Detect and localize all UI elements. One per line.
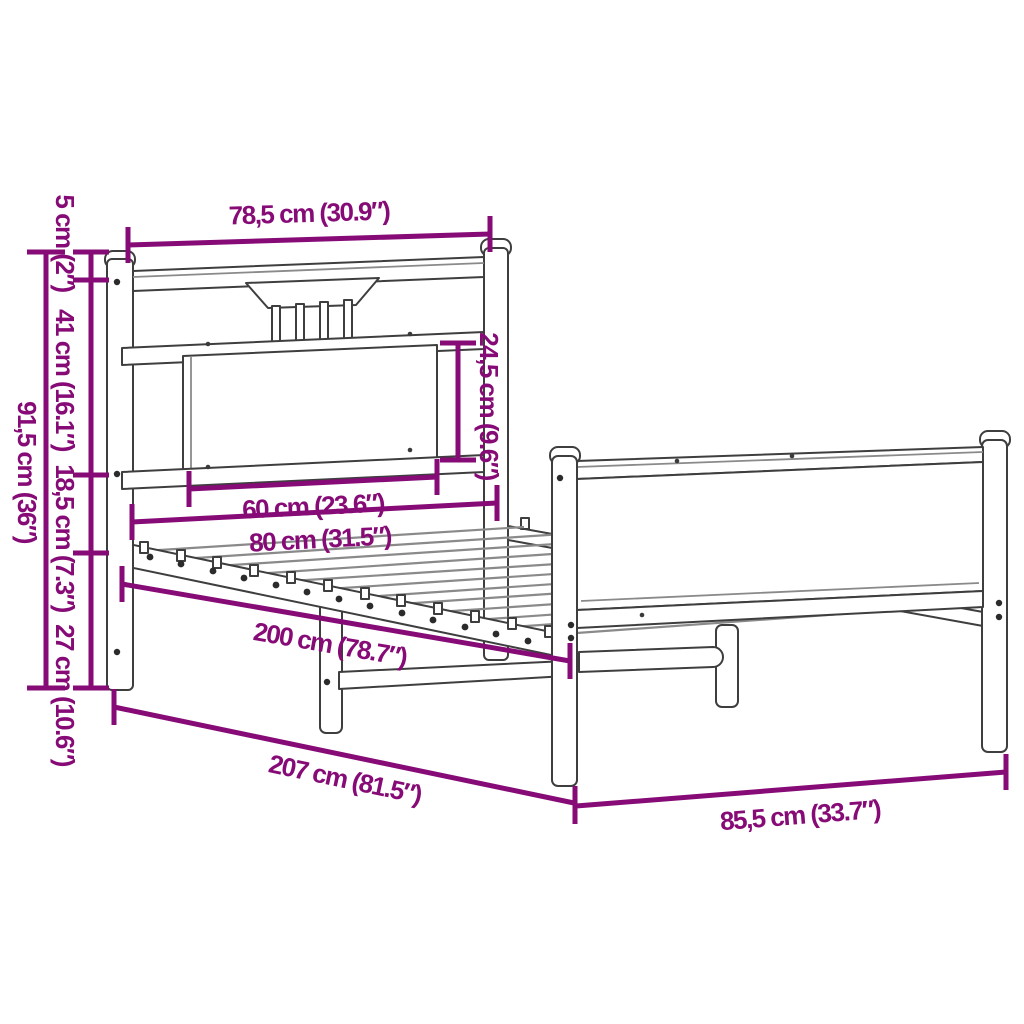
slat-tab (434, 603, 442, 614)
slat-tab (177, 550, 185, 561)
slat-tab (471, 611, 479, 622)
footboard-cross-bar (579, 647, 723, 672)
screw-dot (568, 635, 574, 641)
dim-label: 5 cm (2″) (50, 194, 80, 292)
dim-label: 85,5 cm (33.7″) (719, 794, 882, 837)
footboard (550, 431, 1010, 786)
slat-tab (140, 542, 148, 553)
screw-dot (114, 279, 120, 285)
headboard (122, 257, 484, 489)
dim-label: 27 cm (10.6″) (50, 624, 80, 767)
post-body (552, 456, 577, 786)
footboard-panel (577, 462, 983, 610)
ornament-bar (344, 300, 352, 343)
slat-tab (361, 588, 369, 599)
screw-dot (790, 454, 795, 459)
headboard-ornament (246, 278, 379, 308)
ornament-bar (272, 306, 280, 346)
headboard-near-post (105, 251, 135, 690)
screw-dot (114, 649, 120, 655)
screw-dot (996, 614, 1002, 620)
screw-dot (324, 679, 330, 685)
screw-dot (568, 622, 574, 628)
slat-tab (250, 565, 258, 576)
footboard-far-post (980, 431, 1010, 752)
headboard-panel (183, 345, 437, 472)
slat-tab (213, 557, 221, 568)
dim-label: 24,5 cm (9.6″) (474, 332, 504, 480)
dim-left-stack: 5 cm (2″) 41 cm (16.1″) 18,5 cm (7.3″) 2… (50, 194, 109, 766)
screw-dot (206, 342, 211, 347)
screw-dot (557, 475, 563, 481)
footboard-near-post (550, 447, 580, 786)
slat-tab (324, 580, 332, 591)
dim-total-length: 207 cm (81.5″) (114, 689, 574, 810)
screw-dot (675, 459, 680, 464)
screw-dot (640, 613, 645, 618)
bed-frame-illustration (105, 239, 1010, 786)
slat-tab (397, 595, 405, 606)
dim-label: 18,5 cm (7.3″) (50, 464, 80, 612)
dim-label: 41 cm (16.1″) (50, 309, 80, 452)
dim-label: 91,5 cm (36″) (12, 401, 42, 544)
slat-tab (287, 572, 295, 583)
ornament-bar (320, 302, 328, 344)
dim-label: 60 cm (23.6″) (241, 488, 385, 525)
center-support-leg (320, 595, 342, 733)
dim-panel-height: 24,5 cm (9.6″) (440, 332, 504, 480)
ornament-bar (296, 304, 304, 345)
screw-dot (206, 465, 211, 470)
dim-label: 80 cm (31.5″) (248, 520, 392, 557)
dim-line (128, 234, 490, 245)
post-body (982, 440, 1007, 752)
screw-dot (996, 600, 1002, 606)
screw-dot (408, 332, 413, 337)
leg-body (320, 595, 342, 733)
dim-label: 78,5 cm (30.9″) (228, 195, 390, 230)
dim-footboard-width: 85,5 cm (33.7″) (575, 754, 1006, 836)
screw-dot (114, 471, 120, 477)
bed-frame-dimension-diagram: 78,5 cm (30.9″) 91,5 cm (36″) 5 cm (2″) … (0, 0, 1024, 1024)
screw-dot (408, 448, 413, 453)
dim-headboard-width: 78,5 cm (30.9″) (128, 195, 490, 263)
slat-tab (508, 618, 516, 629)
